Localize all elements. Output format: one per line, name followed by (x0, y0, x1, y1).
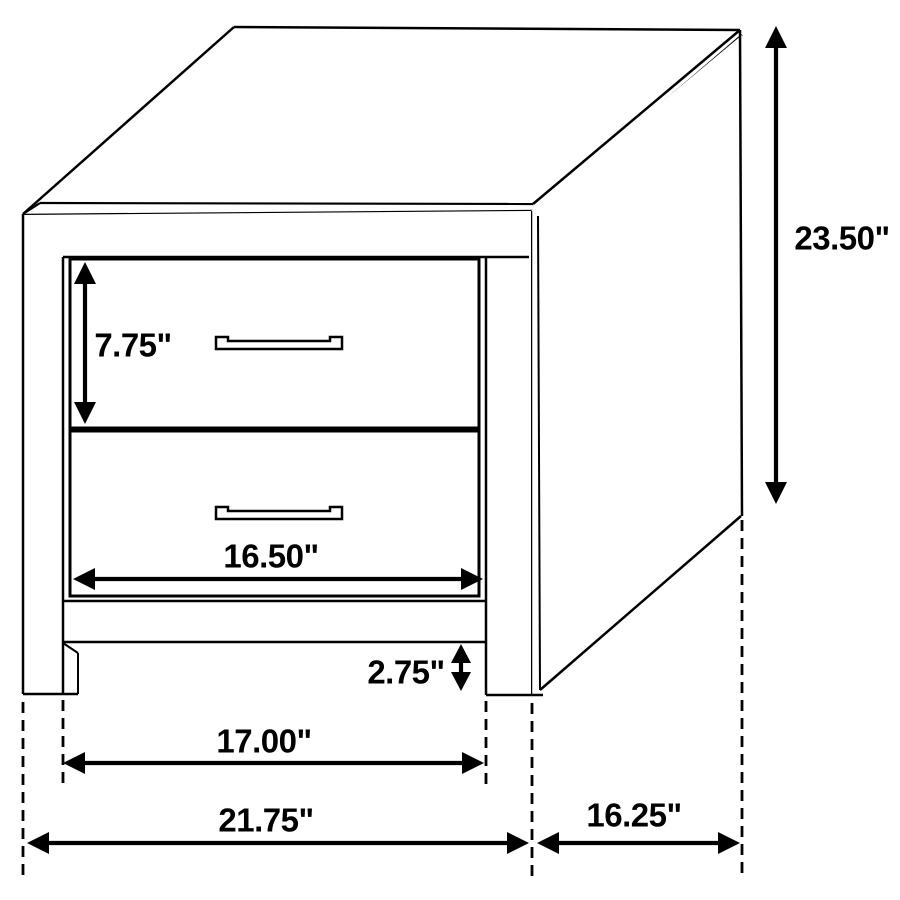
dim-label-drawer-height: 7.75" (94, 329, 171, 362)
nightstand-line-art (0, 0, 900, 900)
front-frame (23, 211, 543, 695)
dim-label-opening-width: 17.00" (216, 725, 311, 758)
dim-label-overall-height: 23.50" (794, 222, 889, 255)
dim-label-overall-width: 21.75" (218, 804, 313, 837)
dim-arrow-overall-height (765, 26, 787, 504)
dim-label-drawer-width: 16.50" (223, 540, 318, 573)
dim-arrow-depth (537, 832, 740, 854)
dim-arrow-leg-clearance (451, 644, 471, 691)
dimension-diagram-canvas: 7.75" 23.50" 16.50" 2.75" 17.00" 21.75" … (0, 0, 900, 900)
dim-label-depth: 16.25" (586, 799, 681, 832)
dim-label-leg-clearance: 2.75" (367, 656, 444, 689)
